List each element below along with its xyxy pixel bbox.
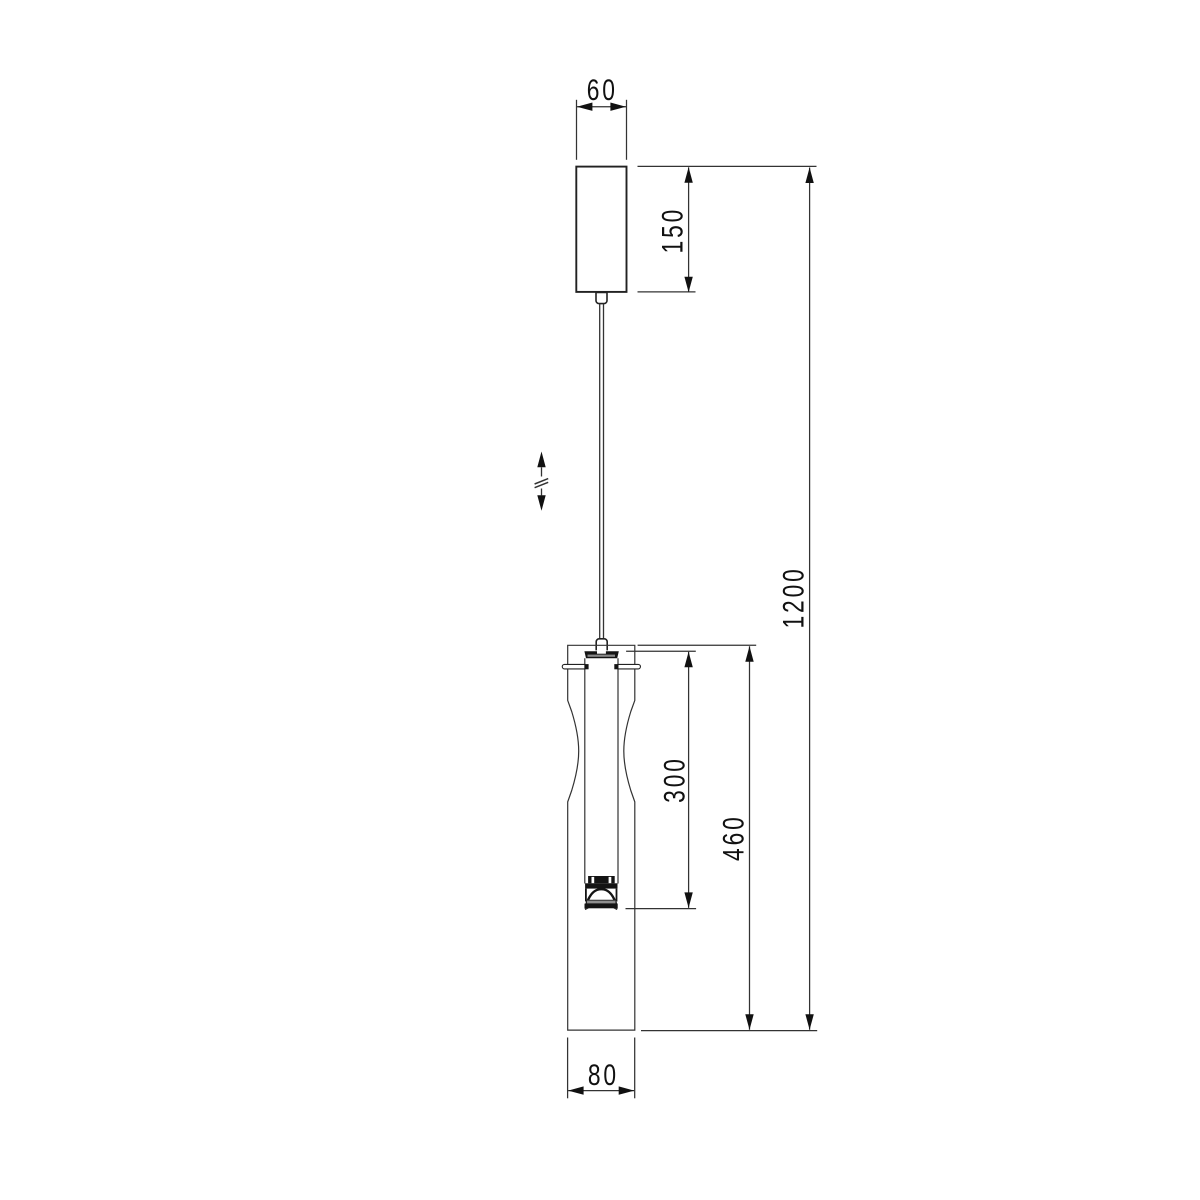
svg-text:80: 80 bbox=[588, 1058, 619, 1092]
svg-text:60: 60 bbox=[587, 73, 618, 107]
svg-text:1200: 1200 bbox=[777, 566, 811, 628]
svg-text:150: 150 bbox=[655, 207, 689, 254]
svg-text:300: 300 bbox=[657, 756, 691, 803]
svg-text:460: 460 bbox=[716, 814, 750, 861]
